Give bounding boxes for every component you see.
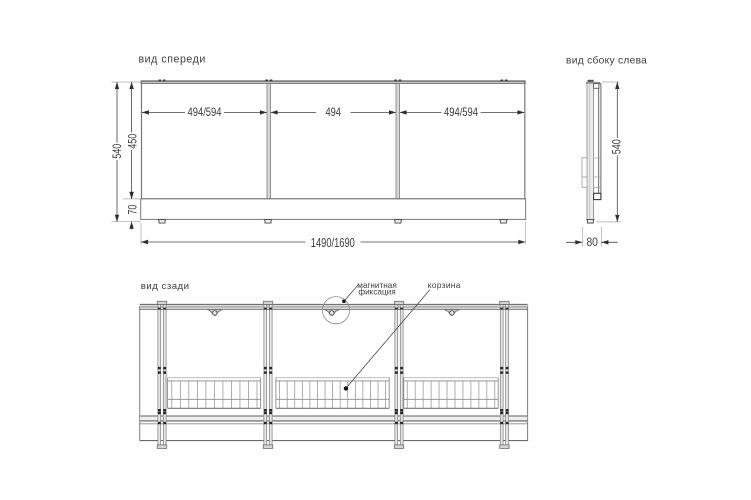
svg-text:540: 540 <box>110 144 124 159</box>
svg-text:корзина: корзина <box>428 280 461 290</box>
svg-text:вид спереди: вид спереди <box>139 54 206 66</box>
svg-text:494: 494 <box>325 105 341 119</box>
svg-text:494/594: 494/594 <box>444 105 478 119</box>
svg-text:80: 80 <box>586 235 598 249</box>
svg-text:вид сзади: вид сзади <box>141 281 190 292</box>
svg-text:540: 540 <box>610 139 624 154</box>
svg-text:494/594: 494/594 <box>188 105 222 119</box>
svg-text:вид сбоку слева: вид сбоку слева <box>566 54 647 66</box>
svg-text:450: 450 <box>125 133 139 148</box>
svg-text:фиксация: фиксация <box>358 286 396 296</box>
svg-text:70: 70 <box>125 204 139 214</box>
svg-text:1490/1690: 1490/1690 <box>311 235 355 250</box>
